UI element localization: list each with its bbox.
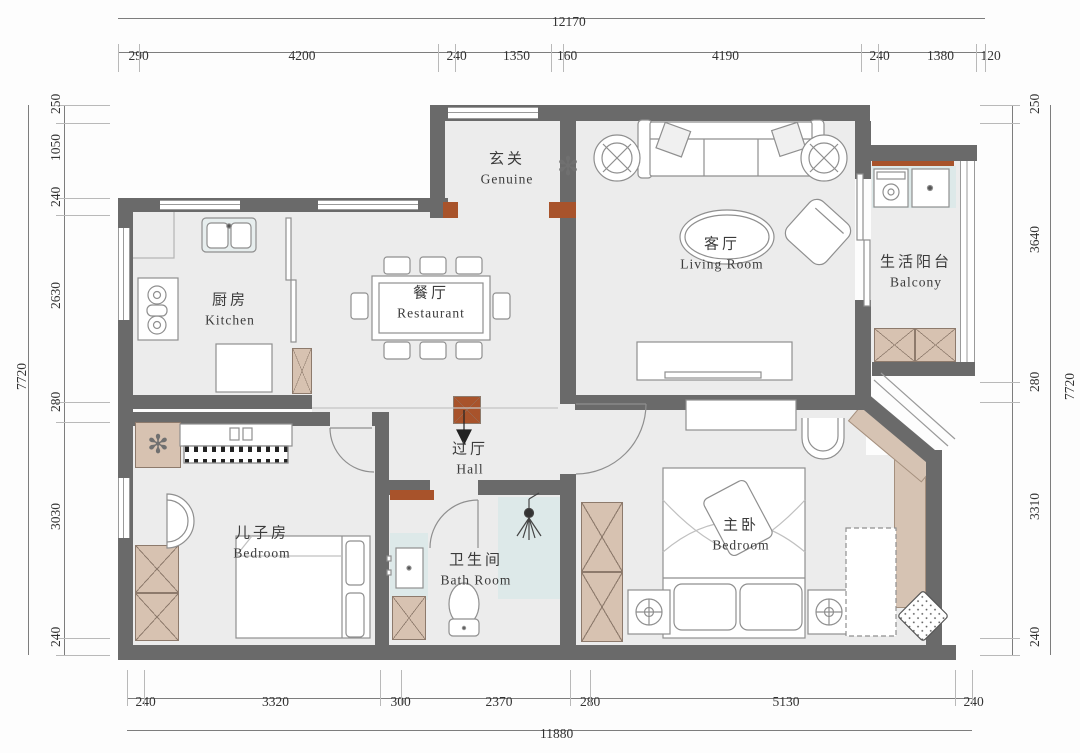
room-label-master-zh: 主卧 [712, 516, 769, 536]
room-label-balcony-en: Balcony [880, 273, 952, 291]
room-floor [430, 480, 478, 495]
window [160, 200, 240, 210]
accent-wall [443, 202, 458, 218]
extension-line [976, 44, 977, 72]
room-floor [560, 404, 576, 474]
room-label-kids: 儿子房 Bedroom [233, 524, 290, 561]
room-floor [330, 412, 372, 426]
extension-line [985, 44, 986, 72]
wardrobe-cabinet [581, 572, 623, 642]
wardrobe-cabinet [292, 348, 312, 394]
extension-line [878, 44, 879, 72]
room-label-dining-zh: 餐厅 [397, 284, 465, 304]
wall [926, 450, 942, 655]
extension-line [980, 382, 1020, 383]
accent-column [453, 396, 481, 424]
extension-line [56, 655, 110, 656]
wardrobe-cabinet [135, 593, 179, 641]
extension-line [861, 44, 862, 72]
extension-line [56, 215, 110, 216]
wall [575, 395, 870, 410]
window [118, 478, 130, 538]
extension-line [118, 44, 119, 72]
extension-line [980, 402, 1020, 403]
sliding-door-balcony [857, 174, 870, 306]
extension-line [972, 670, 973, 706]
extension-line [455, 44, 456, 72]
wall [375, 412, 389, 645]
extension-line [56, 105, 110, 106]
wall [478, 480, 575, 495]
room-label-bath-en: Bath Room [441, 571, 512, 589]
room-label-dining-en: Restaurant [397, 304, 465, 322]
extension-line [401, 670, 402, 706]
plant-decor-icon: ✻ [147, 430, 169, 460]
extension-line [570, 670, 571, 706]
window [118, 228, 130, 320]
extension-line [56, 422, 110, 423]
room-label-hall-zh: 过厅 [452, 440, 488, 460]
extension-line [551, 44, 552, 72]
room-label-living-zh: 客厅 [680, 235, 763, 255]
room-label-kitchen: 厨房 Kitchen [205, 291, 255, 328]
plant-decor-icon: ✻ [557, 152, 579, 182]
extension-line [563, 44, 564, 72]
wall [872, 362, 975, 376]
room-label-dining: 餐厅 Restaurant [397, 284, 465, 321]
room-label-balcony-zh: 生活阳台 [880, 253, 952, 273]
window [448, 107, 538, 119]
wardrobe-cabinet [915, 328, 956, 362]
accent-wall [549, 202, 576, 218]
extension-line [56, 198, 110, 199]
accent-wall [872, 161, 954, 166]
wall [855, 145, 977, 161]
extension-line [127, 670, 128, 706]
floor-plan: 2904200240135016041902401380120121702403… [0, 0, 1080, 753]
wardrobe-cabinet [392, 596, 426, 640]
dimension-line [127, 698, 972, 699]
extension-line [438, 44, 439, 72]
room-label-master-en: Bedroom [712, 536, 769, 554]
room-label-entry-en: Genuine [481, 170, 534, 188]
room-label-entry-zh: 玄关 [481, 150, 534, 170]
room-label-living-en: Living Room [680, 255, 763, 273]
dimension-line [1050, 105, 1051, 655]
window [960, 161, 975, 362]
extension-line [56, 402, 110, 403]
extension-line [980, 655, 1020, 656]
extension-line [955, 670, 956, 706]
extension-line [380, 670, 381, 706]
extension-line [139, 44, 140, 72]
wet-area [390, 533, 428, 600]
room-label-hall-en: Hall [452, 460, 488, 478]
extension-line [56, 638, 110, 639]
room-label-kitchen-en: Kitchen [205, 311, 255, 329]
accent-wall [390, 490, 434, 500]
room-label-kids-zh: 儿子房 [233, 524, 290, 544]
wet-area [872, 166, 956, 208]
wardrobe-cabinet [874, 328, 915, 362]
room-label-kids-en: Bedroom [233, 544, 290, 562]
room-label-bath-zh: 卫生间 [441, 551, 512, 571]
wall [118, 395, 312, 409]
extension-line [590, 670, 591, 706]
room-label-hall: 过厅 Hall [452, 440, 488, 477]
room-label-living: 客厅 Living Room [680, 235, 763, 272]
wardrobe-cabinet [135, 545, 179, 593]
wall [560, 474, 576, 645]
room-label-entry: 玄关 Genuine [481, 150, 534, 187]
room-label-kitchen-zh: 厨房 [205, 291, 255, 311]
dimension-line [64, 105, 65, 655]
extension-line [144, 670, 145, 706]
extension-line [980, 105, 1020, 106]
extension-line [56, 123, 110, 124]
extension-line [980, 638, 1020, 639]
room-label-master: 主卧 Bedroom [712, 516, 769, 553]
room-label-balcony: 生活阳台 Balcony [880, 253, 952, 290]
wall [118, 645, 956, 660]
dimension-line [1012, 105, 1013, 655]
extension-line [980, 123, 1020, 124]
room-label-bath: 卫生间 Bath Room [441, 551, 512, 588]
window [318, 200, 418, 210]
wardrobe-cabinet [581, 502, 623, 572]
